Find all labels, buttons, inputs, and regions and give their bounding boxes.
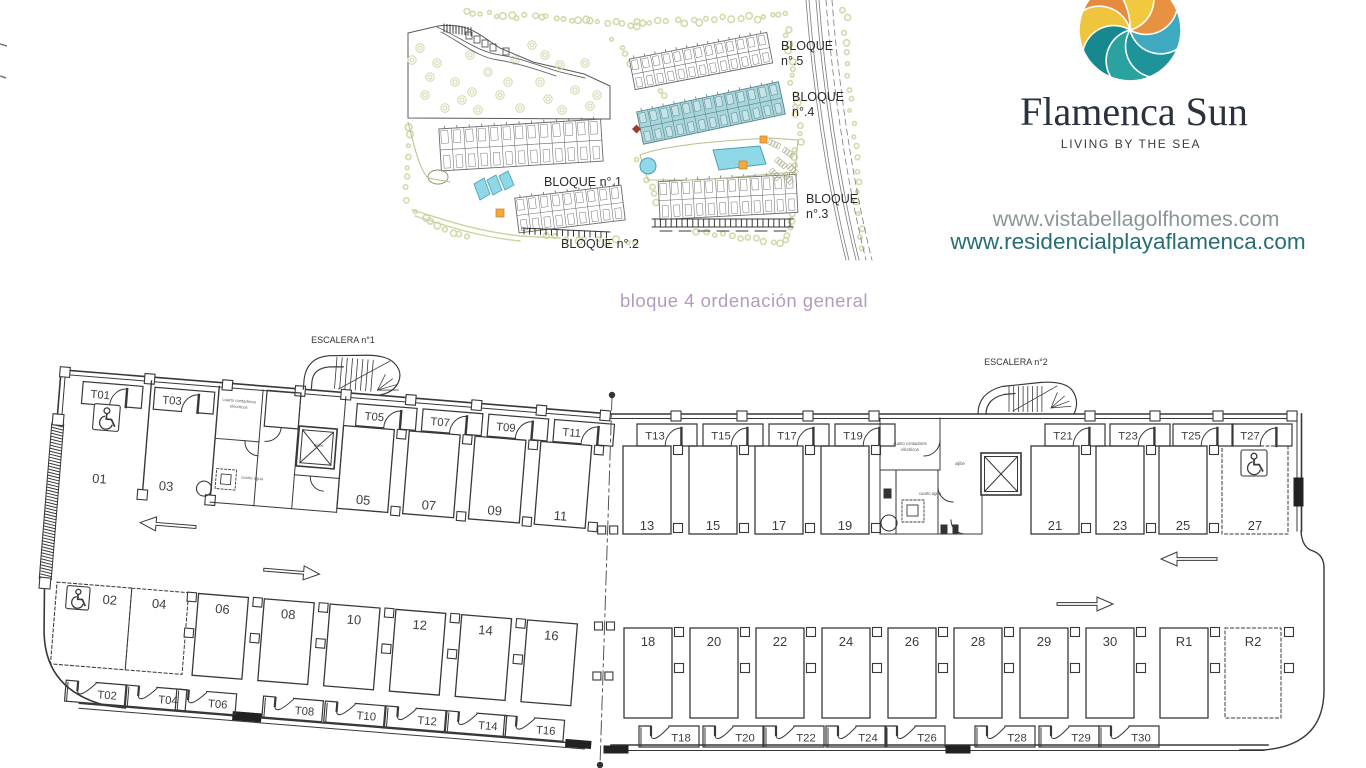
svg-text:T26: T26 (917, 733, 936, 745)
svg-text:29: 29 (1037, 634, 1051, 649)
svg-text:T29: T29 (1071, 733, 1090, 745)
svg-text:15: 15 (706, 518, 720, 533)
svg-text:14: 14 (478, 622, 494, 638)
svg-text:T11: T11 (562, 427, 582, 440)
svg-text:01: 01 (92, 471, 108, 487)
svg-text:19: 19 (838, 518, 852, 533)
svg-text:T25: T25 (1181, 431, 1200, 443)
svg-text:30: 30 (1103, 634, 1117, 649)
svg-text:17: 17 (772, 518, 786, 533)
svg-text:www.vistabellagolfhomes.com: www.vistabellagolfhomes.com (992, 207, 1280, 231)
svg-text:04: 04 (151, 596, 167, 612)
svg-text:aljibe: aljibe (955, 461, 965, 466)
svg-text:02: 02 (102, 592, 118, 608)
svg-text:T22: T22 (796, 733, 815, 745)
svg-text:21: 21 (1048, 518, 1062, 533)
svg-text:20: 20 (707, 634, 721, 649)
svg-text:cuarto agua: cuarto agua (919, 491, 942, 496)
svg-text:R1: R1 (1176, 634, 1193, 649)
svg-text:05: 05 (355, 492, 371, 508)
svg-text:www.residencialplayaflamenca.c: www.residencialplayaflamenca.com (949, 229, 1305, 254)
svg-text:n°.3: n°.3 (806, 207, 828, 221)
svg-text:T12: T12 (417, 715, 437, 729)
svg-text:T10: T10 (356, 710, 376, 724)
svg-text:T23: T23 (1118, 431, 1137, 443)
svg-text:12: 12 (412, 617, 428, 633)
svg-text:T03: T03 (162, 394, 182, 408)
svg-text:24: 24 (839, 634, 853, 649)
svg-text:eléctricos: eléctricos (901, 447, 919, 452)
svg-text:T13: T13 (645, 431, 664, 443)
svg-text:T24: T24 (858, 733, 877, 745)
svg-text:13: 13 (640, 518, 654, 533)
svg-text:T15: T15 (711, 431, 730, 443)
svg-text:BLOQUE n°.2: BLOQUE n°.2 (561, 237, 639, 251)
svg-text:Flamenca Sun: Flamenca Sun (1020, 89, 1248, 134)
svg-text:LIVING BY THE SEA: LIVING BY THE SEA (1061, 137, 1201, 151)
svg-text:08: 08 (280, 606, 296, 622)
svg-text:T14: T14 (478, 720, 498, 734)
svg-text:25: 25 (1176, 518, 1190, 533)
svg-text:06: 06 (215, 601, 231, 617)
svg-text:26: 26 (905, 634, 919, 649)
svg-text:T01: T01 (90, 389, 110, 403)
svg-text:BLOQUE: BLOQUE (781, 39, 833, 53)
svg-text:23: 23 (1113, 518, 1127, 533)
svg-text:T05: T05 (364, 411, 384, 425)
svg-text:16: 16 (544, 627, 560, 643)
svg-text:T06: T06 (208, 698, 228, 712)
svg-text:T09: T09 (496, 421, 516, 435)
svg-text:T19: T19 (843, 431, 862, 443)
svg-text:n°.5: n°.5 (781, 54, 803, 68)
svg-text:BLOQUE: BLOQUE (806, 192, 858, 206)
svg-text:bloque 4 ordenación general: bloque 4 ordenación general (620, 290, 868, 311)
svg-text:T27: T27 (1240, 431, 1259, 443)
svg-text:10: 10 (346, 611, 362, 627)
svg-text:28: 28 (971, 634, 985, 649)
svg-text:ESCALERA n°1: ESCALERA n°1 (311, 335, 375, 345)
svg-text:T02: T02 (97, 689, 117, 703)
svg-text:T17: T17 (777, 431, 796, 443)
svg-text:27: 27 (1248, 518, 1262, 533)
svg-text:T28: T28 (1007, 733, 1026, 745)
svg-text:09: 09 (487, 502, 503, 518)
svg-text:T08: T08 (294, 705, 314, 719)
svg-text:07: 07 (421, 497, 437, 513)
svg-text:22: 22 (773, 634, 787, 649)
svg-text:18: 18 (641, 634, 655, 649)
svg-text:BLOQUE: BLOQUE (792, 90, 844, 104)
svg-text:n°.4: n°.4 (792, 105, 814, 119)
svg-text:11: 11 (553, 508, 568, 524)
svg-text:T30: T30 (1131, 733, 1150, 745)
svg-text:T20: T20 (735, 733, 754, 745)
svg-text:T21: T21 (1053, 431, 1072, 443)
svg-text:R2: R2 (1245, 634, 1262, 649)
svg-text:T16: T16 (535, 725, 555, 739)
svg-text:ESCALERA n°2: ESCALERA n°2 (984, 357, 1048, 367)
svg-text:03: 03 (158, 478, 174, 494)
svg-text:T18: T18 (671, 733, 690, 745)
svg-text:T07: T07 (430, 416, 450, 430)
svg-text:cuarto contadores: cuarto contadores (893, 441, 927, 446)
